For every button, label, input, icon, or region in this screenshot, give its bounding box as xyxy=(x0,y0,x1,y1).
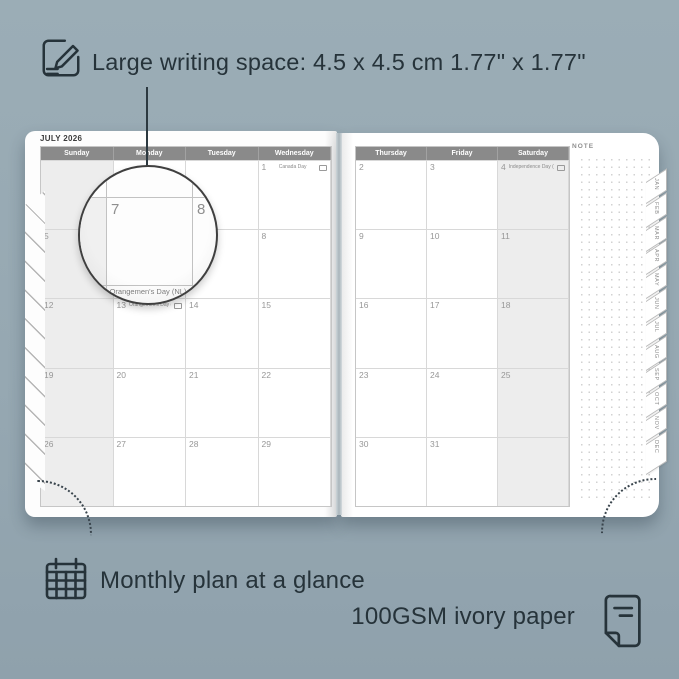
calendar-cell: 25 xyxy=(498,368,569,437)
calendar-cell: 16 xyxy=(356,298,427,367)
holiday-label: Independence Day (US) xyxy=(509,164,554,170)
month-tab-label: SEP xyxy=(653,368,659,381)
month-tab-label: MAR xyxy=(653,226,659,240)
note-label: NOTE xyxy=(572,143,594,150)
calendar-cell: 30 xyxy=(356,437,427,506)
date-number: 23 xyxy=(359,371,368,380)
date-number: 28 xyxy=(189,440,198,449)
month-tab-label: DEC xyxy=(653,440,659,453)
day-header: Wednesday xyxy=(259,147,332,160)
calendar-cell xyxy=(498,437,569,506)
date-number: 9 xyxy=(359,232,364,241)
date-number: 22 xyxy=(262,371,271,380)
month-tab-label: AUG xyxy=(653,345,659,359)
calendar-cell: 22 xyxy=(259,368,332,437)
day-header: Sunday xyxy=(41,147,114,160)
calendar-cell: 1Canada Day xyxy=(259,160,332,229)
calendar-cell: 27 xyxy=(114,437,187,506)
callout-line xyxy=(146,87,148,167)
month-tab-label: JUL xyxy=(653,321,659,333)
flag-icon xyxy=(557,165,565,172)
day-header: Monday xyxy=(114,147,187,160)
date-number: 14 xyxy=(189,301,198,310)
calendar-cell: 20 xyxy=(114,368,187,437)
calendar-cell: 10 xyxy=(427,229,498,298)
date-number: 16 xyxy=(359,301,368,310)
day-header: Thursday xyxy=(356,147,427,160)
month-tab-label: FEB xyxy=(653,202,659,215)
date-number: 4 xyxy=(501,163,506,172)
paper-icon xyxy=(599,594,643,648)
date-number: 30 xyxy=(359,440,368,449)
notebook-spine xyxy=(336,133,342,515)
month-tab-label: OCT xyxy=(653,392,659,405)
date-number: 26 xyxy=(44,440,53,449)
month-tab-dec: DEC xyxy=(646,444,667,475)
date-number: 10 xyxy=(430,232,439,241)
calendar-cell: 11 xyxy=(498,229,569,298)
magnifier-glass-shine xyxy=(80,167,216,303)
date-number: 3 xyxy=(430,163,435,172)
date-number: 12 xyxy=(44,301,53,310)
date-number: 21 xyxy=(189,371,198,380)
date-number: 27 xyxy=(117,440,126,449)
pencil-note-icon xyxy=(38,33,84,83)
calendar-cell: 18 xyxy=(498,298,569,367)
product-image: Large writing space: 4.5 x 4.5 cm 1.77" … xyxy=(0,0,679,679)
calendar-cell: 24 xyxy=(427,368,498,437)
date-number: 15 xyxy=(262,301,271,310)
month-tab-label: JUN xyxy=(653,297,659,310)
month-tab-label: APR xyxy=(653,249,659,262)
date-number: 1 xyxy=(262,163,267,172)
calendar-cell: 4Independence Day (US) xyxy=(498,160,569,229)
date-number: 31 xyxy=(430,440,439,449)
date-number: 13 xyxy=(117,301,126,310)
date-number: 2 xyxy=(359,163,364,172)
date-number: 8 xyxy=(262,232,267,241)
month-tab-label: MAY xyxy=(653,273,659,286)
monthly-plan-caption: Monthly plan at a glance xyxy=(100,567,365,595)
calendar-cell: 13Orangemen's Day (NL) xyxy=(114,298,187,367)
calendar-cell: 21 xyxy=(186,368,259,437)
date-number: 19 xyxy=(44,371,53,380)
flag-icon xyxy=(174,303,182,310)
day-header: Friday xyxy=(427,147,498,160)
date-number: 18 xyxy=(501,301,510,310)
month-tab-label: NOV xyxy=(653,416,659,430)
month-tab-label: JAN xyxy=(653,178,659,190)
date-number: 11 xyxy=(501,232,510,241)
date-number: 29 xyxy=(262,440,271,449)
date-number: 20 xyxy=(117,371,126,380)
calendar-grid-right: ThursdayFridaySaturday234Independence Da… xyxy=(355,146,570,507)
day-header: Tuesday xyxy=(186,147,259,160)
calendar-cell: 23 xyxy=(356,368,427,437)
calendar-cell: 28 xyxy=(186,437,259,506)
date-number: 17 xyxy=(430,301,439,310)
calendar-icon xyxy=(44,556,88,602)
calendar-cell: 15 xyxy=(259,298,332,367)
writing-space-caption: Large writing space: 4.5 x 4.5 cm 1.77" … xyxy=(92,49,586,76)
date-number: 25 xyxy=(501,371,510,380)
month-title: JULY 2026 xyxy=(40,134,82,143)
calendar-cell: 12 xyxy=(41,298,114,367)
note-dot-grid xyxy=(578,156,650,504)
date-number: 24 xyxy=(430,371,439,380)
calendar-cell: 9 xyxy=(356,229,427,298)
calendar-cell: 29 xyxy=(259,437,332,506)
flag-icon xyxy=(319,165,327,172)
calendar-cell: 31 xyxy=(427,437,498,506)
paper-caption: 100GSM ivory paper xyxy=(351,603,575,631)
page-edge-tabs-left xyxy=(25,191,45,491)
calendar-cell: 19 xyxy=(41,368,114,437)
calendar-cell: 14 xyxy=(186,298,259,367)
calendar-cell: 2 xyxy=(356,160,427,229)
magnifier-circle: 7 8 Orangemen's Day (NL) xyxy=(78,165,218,305)
calendar-cell: 8 xyxy=(259,229,332,298)
day-header: Saturday xyxy=(498,147,569,160)
holiday-label: Canada Day xyxy=(269,164,316,170)
calendar-cell: 17 xyxy=(427,298,498,367)
calendar-cell: 3 xyxy=(427,160,498,229)
